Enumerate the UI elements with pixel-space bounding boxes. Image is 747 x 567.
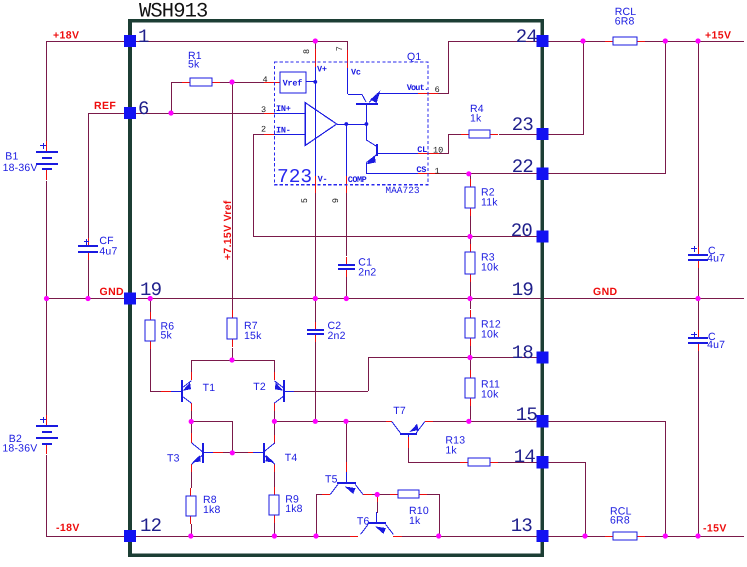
svg-text:6R8: 6R8	[615, 16, 635, 28]
svg-text:IN+: IN+	[276, 104, 291, 114]
svg-text:10k: 10k	[481, 389, 499, 401]
svg-text:1: 1	[435, 166, 440, 176]
svg-text:5k: 5k	[161, 330, 173, 342]
svg-text:Q1: Q1	[407, 51, 421, 63]
svg-text:23: 23	[512, 114, 534, 136]
svg-text:T1: T1	[203, 382, 216, 394]
svg-text:2: 2	[261, 125, 266, 135]
svg-text:13: 13	[511, 515, 533, 537]
svg-text:19: 19	[140, 279, 162, 301]
svg-text:V+: V+	[317, 65, 327, 75]
svg-text:+18V: +18V	[53, 30, 79, 42]
svg-text:4u7: 4u7	[707, 339, 725, 351]
svg-text:8: 8	[302, 49, 312, 54]
svg-text:1k8: 1k8	[285, 503, 303, 515]
svg-text:Vc: Vc	[351, 68, 361, 78]
svg-text:Vout.: Vout.	[407, 83, 429, 93]
svg-text:18: 18	[512, 342, 534, 364]
svg-text:GND: GND	[593, 286, 618, 298]
svg-text:CS: CS	[416, 165, 426, 175]
svg-text:10k: 10k	[481, 262, 499, 274]
svg-text:11k: 11k	[481, 197, 498, 209]
svg-text:4u7: 4u7	[99, 246, 117, 258]
svg-text:6: 6	[138, 98, 149, 120]
svg-text:18-36V: 18-36V	[2, 443, 37, 455]
svg-text:2n2: 2n2	[328, 330, 346, 342]
svg-text:24: 24	[516, 26, 538, 48]
svg-text:19: 19	[512, 279, 534, 301]
svg-text:6: 6	[435, 85, 440, 95]
svg-text:T5: T5	[325, 474, 338, 486]
svg-text:2n2: 2n2	[358, 267, 376, 279]
svg-text:5: 5	[300, 198, 310, 203]
svg-text:15: 15	[516, 404, 538, 426]
svg-text:1k8: 1k8	[203, 504, 221, 516]
svg-text:MAA723: MAA723	[385, 185, 420, 196]
svg-text:7: 7	[335, 46, 345, 51]
svg-text:15k: 15k	[244, 330, 262, 342]
svg-text:12: 12	[140, 515, 162, 537]
svg-text:Vref: Vref	[283, 79, 303, 89]
svg-text:GND: GND	[100, 286, 125, 298]
svg-text:723: 723	[277, 166, 312, 188]
svg-text:T4: T4	[285, 452, 298, 464]
svg-text:18-36V: 18-36V	[3, 162, 38, 174]
svg-text:1k: 1k	[470, 113, 482, 125]
svg-text:3: 3	[261, 105, 266, 115]
svg-text:10k: 10k	[481, 329, 499, 341]
svg-text:T7: T7	[393, 405, 406, 417]
svg-text:9: 9	[331, 198, 341, 203]
svg-text:-18V: -18V	[56, 522, 80, 534]
svg-text:1: 1	[138, 26, 149, 48]
svg-text:+15V: +15V	[705, 30, 731, 42]
svg-text:CL: CL	[417, 145, 427, 155]
svg-text:20: 20	[511, 220, 533, 242]
svg-text:14: 14	[514, 446, 536, 468]
svg-text:IN-: IN-	[276, 125, 291, 135]
svg-text:1k: 1k	[445, 445, 457, 457]
svg-text:1k: 1k	[409, 515, 421, 527]
svg-text:4u7: 4u7	[707, 253, 725, 265]
svg-text:4: 4	[263, 75, 268, 85]
svg-text:5k: 5k	[188, 59, 200, 71]
svg-text:REF: REF	[94, 100, 116, 112]
svg-text:-15V: -15V	[703, 523, 727, 535]
svg-text:B1: B1	[5, 151, 18, 163]
svg-text:22: 22	[512, 156, 534, 178]
svg-text:10: 10	[433, 145, 443, 155]
svg-text:COMP: COMP	[348, 175, 367, 185]
svg-text:T2: T2	[253, 381, 266, 393]
svg-text:6R8: 6R8	[610, 515, 630, 527]
svg-text:T3: T3	[167, 453, 180, 465]
svg-text:WSH913: WSH913	[139, 1, 207, 24]
svg-text:V-: V-	[318, 175, 328, 185]
svg-text:+7.15V Vref: +7.15V Vref	[222, 200, 234, 260]
svg-text:T6: T6	[357, 516, 370, 528]
